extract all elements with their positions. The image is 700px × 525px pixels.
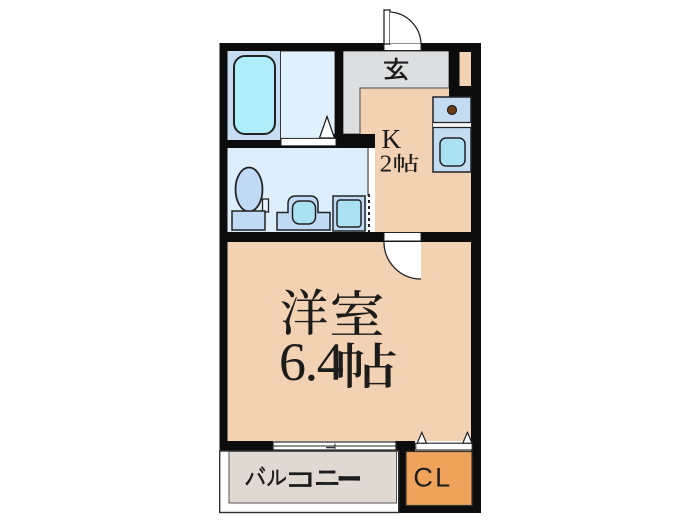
svg-text:6.4: 6.4: [279, 332, 344, 392]
svg-text:2: 2: [380, 151, 393, 178]
svg-text:CL: CL: [413, 463, 452, 493]
svg-text:K: K: [382, 124, 402, 154]
